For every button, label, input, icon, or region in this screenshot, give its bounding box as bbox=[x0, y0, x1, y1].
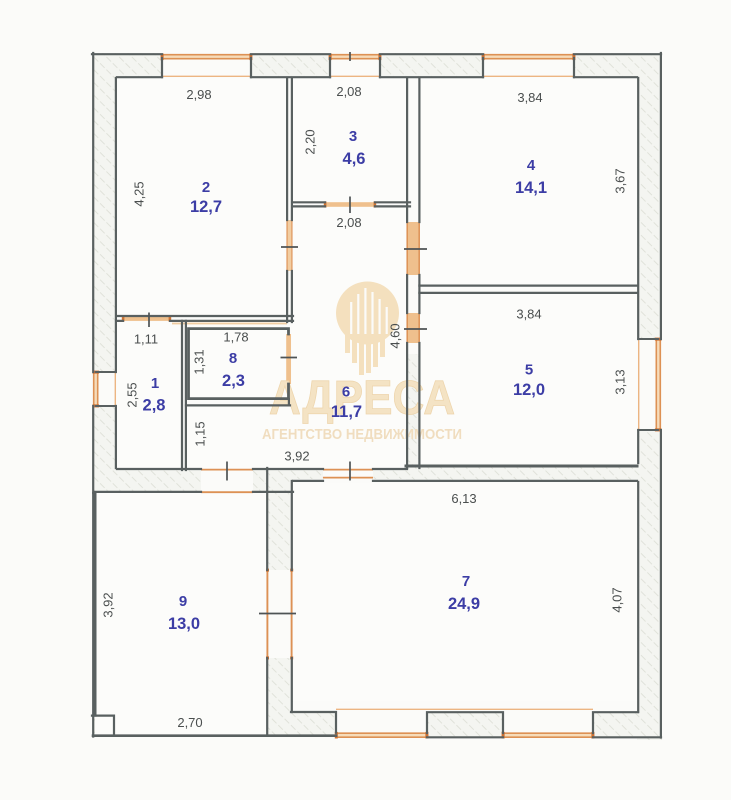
svg-text:11,7: 11,7 bbox=[331, 403, 362, 421]
svg-text:2: 2 bbox=[202, 179, 210, 196]
svg-text:8: 8 bbox=[229, 350, 237, 367]
svg-text:3,92: 3,92 bbox=[101, 592, 116, 617]
svg-text:3,84: 3,84 bbox=[516, 307, 541, 322]
svg-text:2,3: 2,3 bbox=[222, 372, 245, 390]
svg-text:4,25: 4,25 bbox=[132, 181, 147, 206]
svg-text:1,31: 1,31 bbox=[192, 349, 207, 374]
svg-text:4,60: 4,60 bbox=[388, 323, 403, 348]
svg-text:7: 7 bbox=[462, 573, 470, 590]
svg-text:12,0: 12,0 bbox=[513, 381, 545, 399]
svg-text:2,70: 2,70 bbox=[177, 715, 202, 730]
svg-text:1: 1 bbox=[151, 375, 159, 392]
svg-text:4: 4 bbox=[527, 157, 536, 174]
svg-text:1,78: 1,78 bbox=[223, 330, 248, 345]
svg-text:2,08: 2,08 bbox=[336, 84, 361, 99]
svg-text:2,8: 2,8 bbox=[143, 397, 166, 415]
svg-text:2,20: 2,20 bbox=[303, 129, 318, 154]
svg-text:3,13: 3,13 bbox=[613, 369, 628, 394]
svg-text:5: 5 bbox=[525, 362, 533, 379]
svg-text:3: 3 bbox=[349, 128, 357, 145]
svg-text:14,1: 14,1 bbox=[515, 179, 547, 197]
svg-text:3,84: 3,84 bbox=[517, 90, 542, 105]
svg-text:12,7: 12,7 bbox=[190, 198, 222, 216]
svg-text:9: 9 bbox=[179, 593, 187, 610]
svg-text:2,98: 2,98 bbox=[186, 87, 211, 102]
svg-text:13,0: 13,0 bbox=[168, 615, 200, 633]
svg-text:1,15: 1,15 bbox=[193, 421, 208, 446]
svg-text:3,67: 3,67 bbox=[613, 168, 628, 193]
svg-text:4,07: 4,07 bbox=[610, 587, 625, 612]
svg-text:3,92: 3,92 bbox=[284, 448, 309, 463]
svg-text:АГЕНТСТВО НЕДВИЖИМОСТИ: АГЕНТСТВО НЕДВИЖИМОСТИ bbox=[262, 427, 462, 443]
svg-text:6: 6 bbox=[342, 384, 350, 401]
svg-text:2,08: 2,08 bbox=[336, 215, 361, 230]
svg-text:24,9: 24,9 bbox=[448, 595, 480, 613]
svg-text:1,11: 1,11 bbox=[134, 332, 158, 347]
svg-text:2,55: 2,55 bbox=[125, 382, 140, 407]
svg-text:4,6: 4,6 bbox=[343, 150, 366, 168]
svg-text:6,13: 6,13 bbox=[451, 491, 476, 506]
